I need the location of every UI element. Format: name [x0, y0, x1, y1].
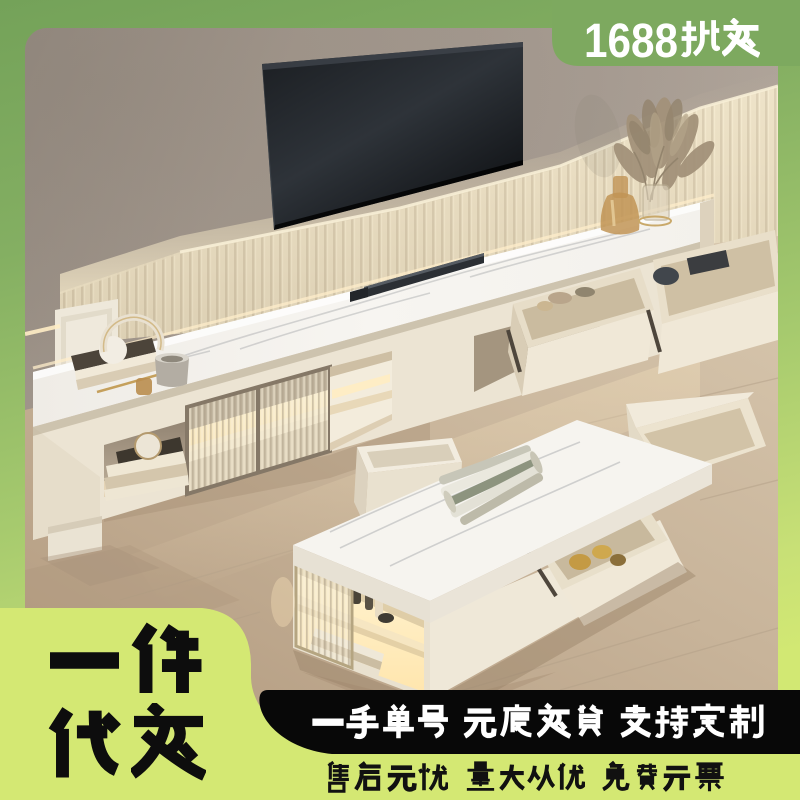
svg-text:1688: 1688 [584, 15, 678, 68]
